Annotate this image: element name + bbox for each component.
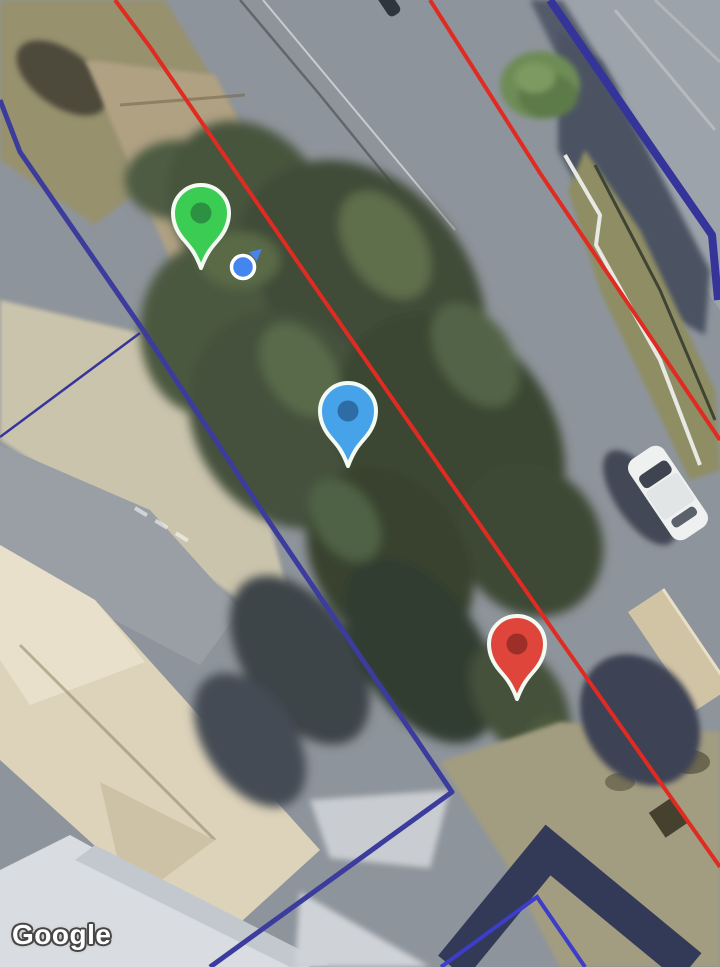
pin-inner-dot [338, 401, 359, 422]
map-overlays [0, 0, 720, 967]
blue-map-pin[interactable] [320, 383, 376, 466]
green-map-pin[interactable] [173, 185, 229, 268]
pin-inner-dot [191, 203, 212, 224]
red-boundary-line-right [430, 0, 720, 440]
current-location-dot[interactable] [232, 245, 266, 279]
parcel-line-right [550, 0, 718, 300]
pin-inner-dot [507, 634, 528, 655]
google-watermark-logo: Google [12, 919, 111, 951]
red-map-pin[interactable] [489, 616, 545, 699]
parcel-line-bottom [441, 897, 585, 967]
parcel-line-branch [0, 333, 140, 437]
map-viewport[interactable]: Google [0, 0, 720, 967]
